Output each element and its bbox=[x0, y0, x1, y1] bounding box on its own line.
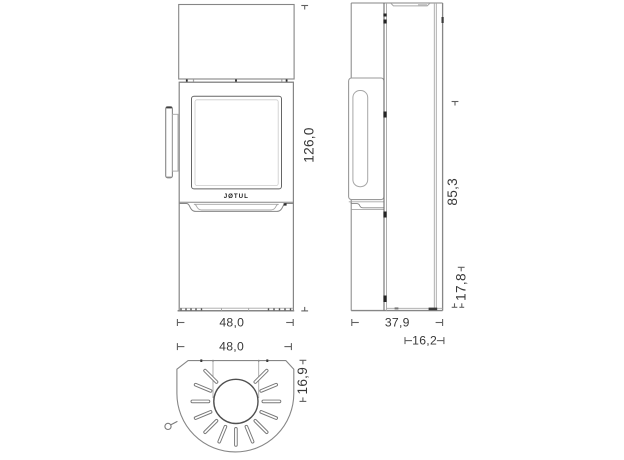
svg-text:16,9: 16,9 bbox=[295, 367, 310, 395]
svg-text:48,0: 48,0 bbox=[219, 316, 244, 330]
svg-text:37,9: 37,9 bbox=[385, 316, 410, 330]
svg-text:48,0: 48,0 bbox=[219, 340, 244, 354]
svg-text:17,8: 17,8 bbox=[453, 273, 468, 301]
svg-text:JØTUL: JØTUL bbox=[224, 193, 249, 200]
svg-text:16,2: 16,2 bbox=[412, 334, 437, 348]
svg-text:85,3: 85,3 bbox=[445, 178, 460, 206]
svg-text:126,0: 126,0 bbox=[301, 127, 316, 163]
